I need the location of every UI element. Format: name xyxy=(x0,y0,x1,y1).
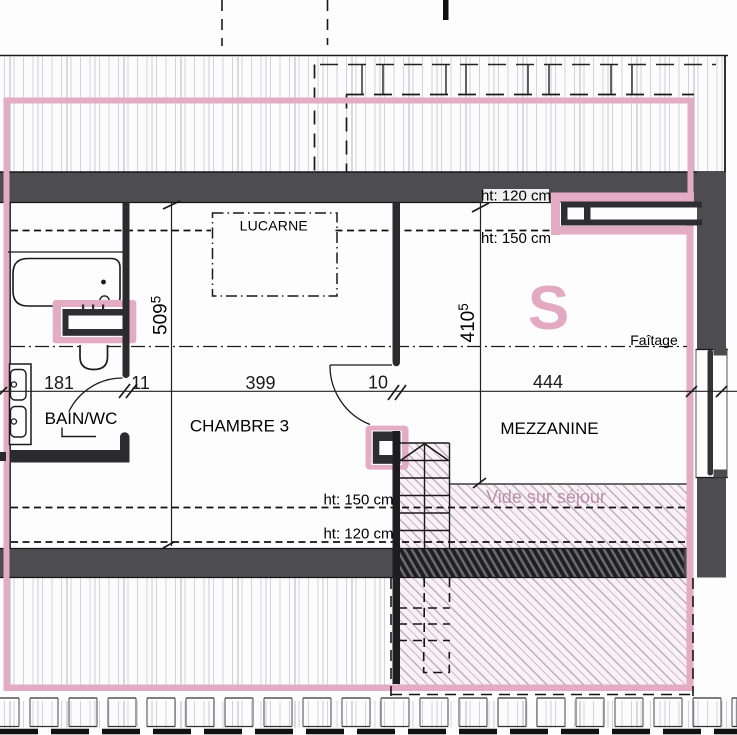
svg-text:ht: 150 cm: ht: 150 cm xyxy=(481,230,551,247)
svg-text:Vide sur séjour: Vide sur séjour xyxy=(486,487,606,507)
svg-text:Faîtage: Faîtage xyxy=(630,332,678,348)
svg-text:ht: 120 cm: ht: 120 cm xyxy=(323,526,393,543)
svg-text:LUCARNE: LUCARNE xyxy=(240,218,308,234)
svg-text:11: 11 xyxy=(131,373,150,393)
svg-text:399: 399 xyxy=(245,373,275,393)
svg-text:444: 444 xyxy=(533,372,563,392)
svg-text:CHAMBRE 3: CHAMBRE 3 xyxy=(190,417,289,436)
svg-text:BAIN/WC: BAIN/WC xyxy=(45,409,118,428)
svg-text:ht: 150 cm: ht: 150 cm xyxy=(323,492,393,509)
svg-text:10: 10 xyxy=(368,373,388,393)
svg-text:181: 181 xyxy=(44,373,74,393)
svg-text:MEZZANINE: MEZZANINE xyxy=(500,419,598,438)
svg-text:S: S xyxy=(528,274,569,343)
svg-text:ht: 120 cm: ht: 120 cm xyxy=(481,188,551,205)
